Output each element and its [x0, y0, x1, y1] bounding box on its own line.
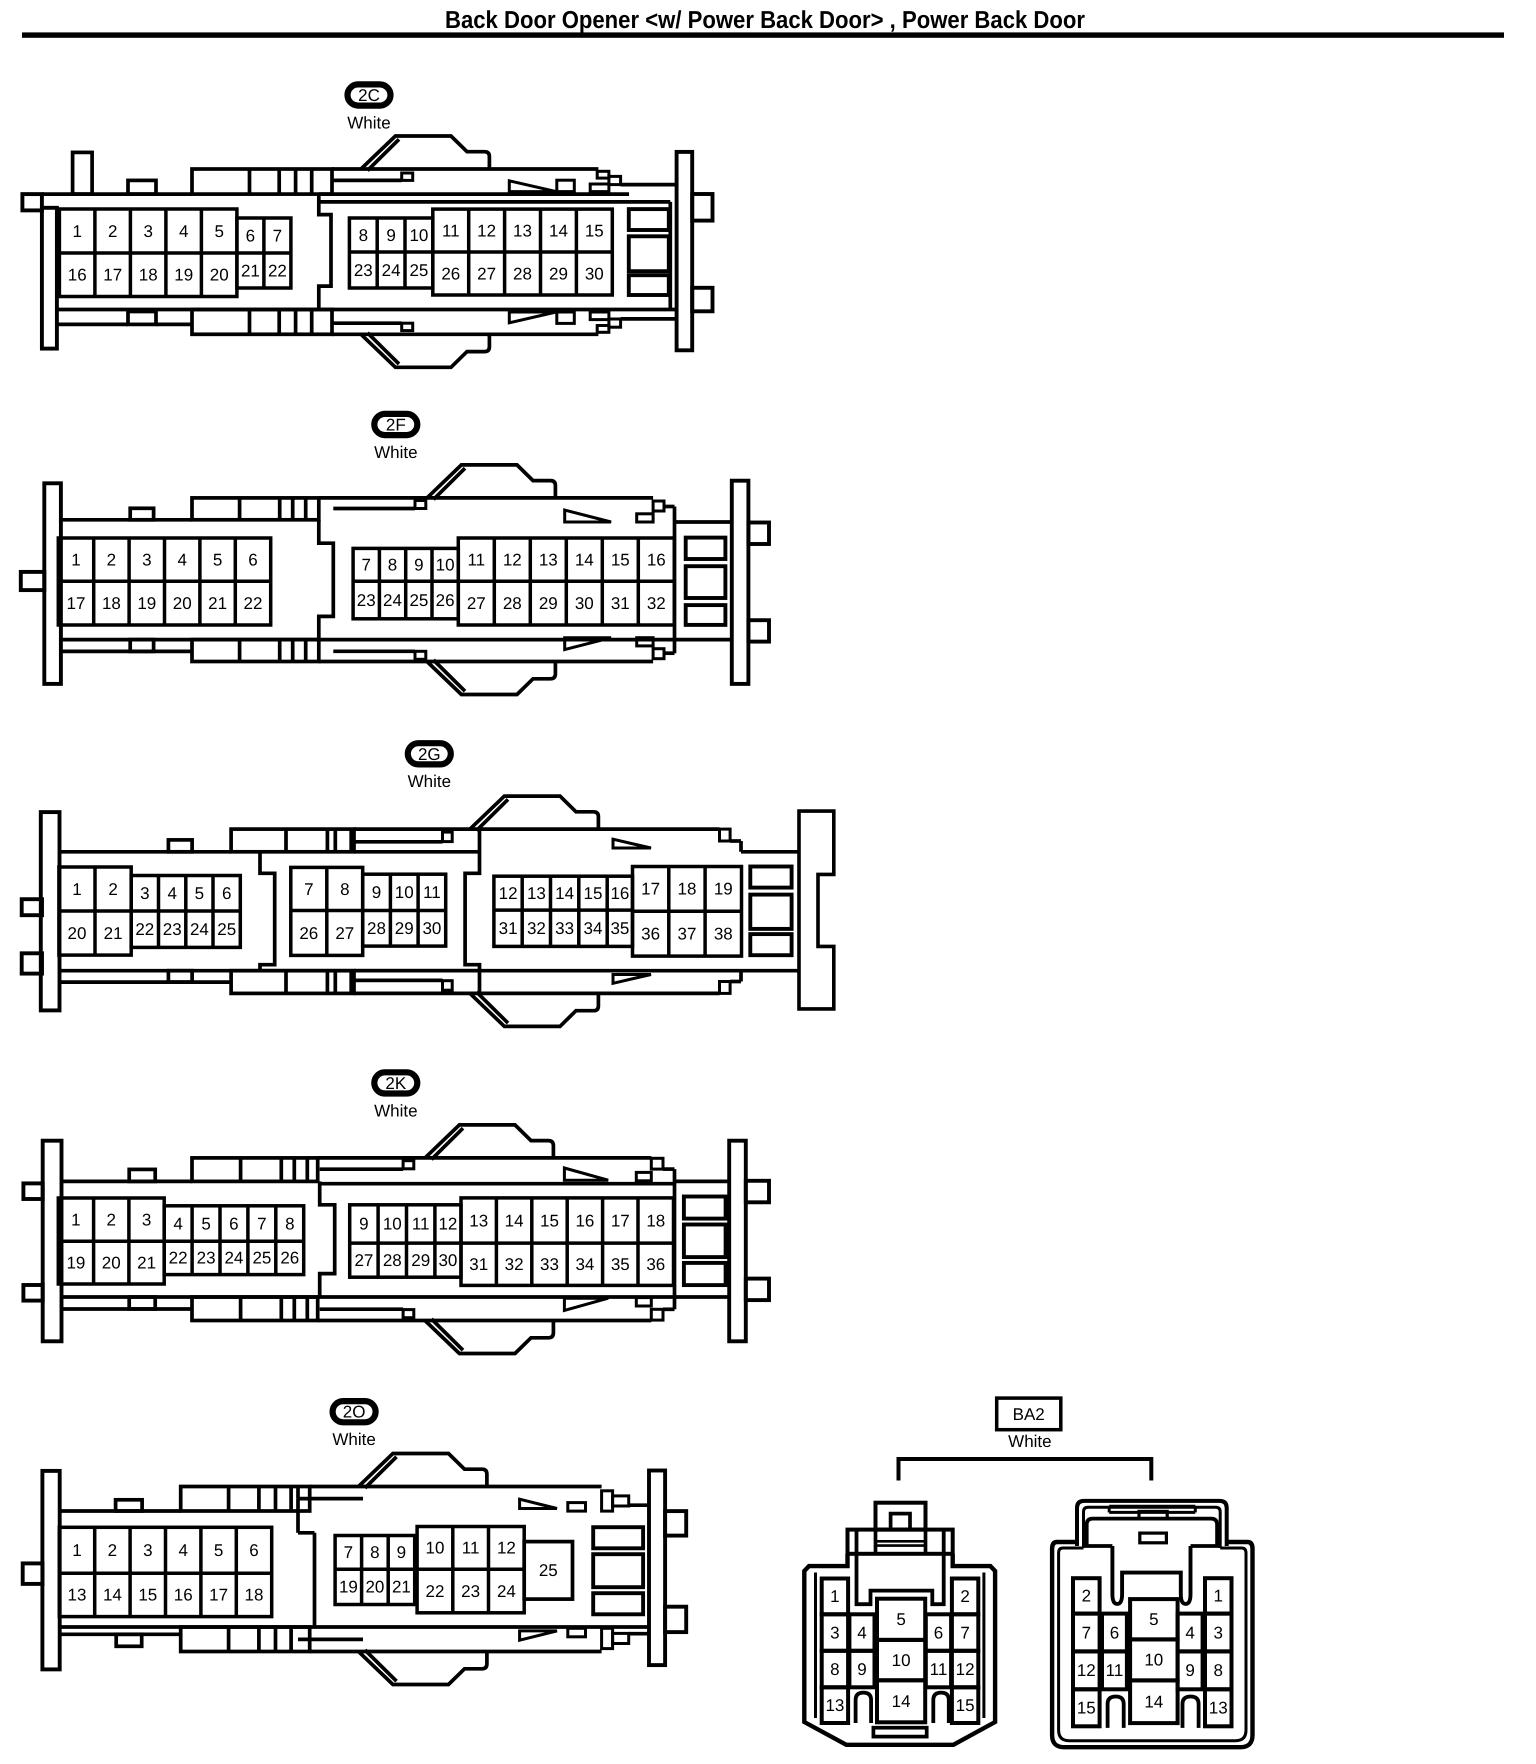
- svg-text:8: 8: [285, 1214, 294, 1233]
- svg-text:30: 30: [438, 1251, 457, 1270]
- svg-text:15: 15: [611, 550, 630, 569]
- svg-text:2G: 2G: [418, 745, 441, 764]
- svg-text:25: 25: [217, 920, 236, 939]
- svg-text:19: 19: [66, 1254, 85, 1273]
- svg-text:2: 2: [960, 1587, 969, 1606]
- svg-text:16: 16: [68, 266, 87, 285]
- svg-text:20: 20: [365, 1578, 384, 1597]
- svg-text:12: 12: [499, 884, 518, 903]
- svg-text:37: 37: [678, 925, 697, 944]
- svg-text:3: 3: [142, 550, 151, 569]
- svg-text:26: 26: [441, 264, 460, 283]
- svg-text:White: White: [408, 772, 451, 791]
- svg-text:19: 19: [339, 1578, 358, 1597]
- svg-text:33: 33: [555, 919, 574, 938]
- svg-text:2: 2: [106, 1211, 115, 1230]
- svg-text:5: 5: [201, 1214, 210, 1233]
- svg-text:11: 11: [467, 550, 485, 569]
- svg-text:31: 31: [611, 594, 630, 613]
- svg-text:18: 18: [678, 880, 697, 899]
- svg-text:2: 2: [108, 222, 117, 241]
- svg-text:10: 10: [409, 226, 428, 245]
- svg-text:4: 4: [178, 1541, 187, 1560]
- svg-text:32: 32: [647, 594, 666, 613]
- svg-text:13: 13: [469, 1211, 488, 1230]
- svg-text:7: 7: [304, 880, 313, 899]
- svg-text:9: 9: [1185, 1661, 1194, 1680]
- svg-text:White: White: [1008, 1432, 1051, 1451]
- svg-text:32: 32: [527, 919, 546, 938]
- svg-text:1: 1: [1213, 1587, 1222, 1606]
- svg-text:22: 22: [426, 1582, 445, 1601]
- svg-text:6: 6: [248, 550, 257, 569]
- svg-text:1: 1: [830, 1587, 839, 1606]
- svg-text:8: 8: [830, 1660, 839, 1679]
- svg-text:10: 10: [395, 883, 414, 902]
- svg-text:13: 13: [68, 1586, 87, 1605]
- svg-text:25: 25: [409, 591, 428, 610]
- svg-text:White: White: [374, 443, 417, 462]
- svg-text:5: 5: [1149, 1610, 1158, 1629]
- svg-text:11: 11: [442, 221, 460, 240]
- svg-text:21: 21: [241, 261, 260, 280]
- svg-text:21: 21: [104, 924, 123, 943]
- svg-text:24: 24: [497, 1582, 516, 1601]
- svg-text:7: 7: [257, 1214, 266, 1233]
- svg-text:9: 9: [857, 1660, 866, 1679]
- svg-text:5: 5: [896, 1610, 905, 1629]
- svg-text:14: 14: [892, 1692, 911, 1711]
- svg-text:20: 20: [210, 266, 229, 285]
- svg-text:1: 1: [72, 222, 81, 241]
- svg-text:23: 23: [354, 261, 373, 280]
- svg-text:28: 28: [367, 919, 386, 938]
- svg-text:14: 14: [549, 221, 568, 240]
- svg-text:3: 3: [142, 1211, 151, 1230]
- svg-text:14: 14: [555, 884, 574, 903]
- svg-text:3: 3: [143, 222, 152, 241]
- svg-text:28: 28: [513, 264, 532, 283]
- svg-text:2O: 2O: [343, 1403, 366, 1422]
- svg-text:15: 15: [138, 1586, 157, 1605]
- svg-text:27: 27: [477, 264, 496, 283]
- svg-text:13: 13: [513, 221, 532, 240]
- svg-text:14: 14: [1144, 1693, 1163, 1712]
- svg-text:9: 9: [397, 1543, 406, 1562]
- svg-text:10: 10: [383, 1215, 402, 1234]
- svg-text:6: 6: [222, 884, 231, 903]
- svg-text:6: 6: [1110, 1623, 1119, 1642]
- svg-text:7: 7: [361, 556, 370, 575]
- svg-text:19: 19: [137, 594, 156, 613]
- svg-text:10: 10: [436, 556, 455, 575]
- svg-text:4: 4: [173, 1214, 182, 1233]
- svg-text:1: 1: [71, 550, 80, 569]
- svg-text:2: 2: [108, 880, 117, 899]
- svg-text:7: 7: [960, 1623, 969, 1642]
- svg-text:29: 29: [539, 594, 558, 613]
- svg-text:29: 29: [549, 264, 568, 283]
- svg-text:13: 13: [539, 550, 558, 569]
- svg-text:9: 9: [359, 1215, 368, 1234]
- svg-text:11: 11: [930, 1660, 948, 1679]
- svg-text:6: 6: [229, 1214, 238, 1233]
- svg-text:8: 8: [340, 880, 349, 899]
- svg-text:12: 12: [477, 221, 496, 240]
- svg-text:4: 4: [177, 550, 186, 569]
- svg-text:29: 29: [411, 1251, 430, 1270]
- svg-text:25: 25: [252, 1249, 271, 1268]
- svg-text:4: 4: [1185, 1623, 1194, 1642]
- svg-text:3: 3: [830, 1623, 839, 1642]
- svg-text:24: 24: [382, 261, 401, 280]
- svg-text:31: 31: [469, 1255, 488, 1274]
- svg-text:18: 18: [102, 594, 121, 613]
- svg-text:16: 16: [647, 550, 666, 569]
- svg-text:9: 9: [386, 226, 395, 245]
- svg-text:12: 12: [956, 1660, 975, 1679]
- svg-text:11: 11: [1106, 1661, 1124, 1680]
- svg-text:12: 12: [503, 550, 522, 569]
- svg-text:15: 15: [585, 221, 604, 240]
- svg-text:2: 2: [108, 1541, 117, 1560]
- svg-text:31: 31: [499, 919, 518, 938]
- svg-text:9: 9: [372, 883, 381, 902]
- svg-text:32: 32: [505, 1255, 524, 1274]
- svg-text:Back Door Opener <w/ Power Bac: Back Door Opener <w/ Power Back Door> , …: [445, 7, 1085, 34]
- svg-text:23: 23: [163, 920, 182, 939]
- svg-text:33: 33: [540, 1255, 559, 1274]
- svg-text:26: 26: [436, 591, 455, 610]
- svg-text:10: 10: [892, 1651, 911, 1670]
- svg-text:5: 5: [213, 550, 222, 569]
- svg-text:25: 25: [409, 261, 428, 280]
- svg-text:16: 16: [610, 884, 629, 903]
- svg-text:17: 17: [209, 1586, 228, 1605]
- svg-text:30: 30: [585, 264, 604, 283]
- svg-text:28: 28: [503, 594, 522, 613]
- svg-text:10: 10: [426, 1539, 445, 1558]
- svg-text:3: 3: [140, 884, 149, 903]
- svg-text:15: 15: [956, 1696, 975, 1715]
- svg-text:10: 10: [1144, 1651, 1163, 1670]
- svg-text:11: 11: [423, 883, 441, 902]
- svg-text:23: 23: [197, 1249, 216, 1268]
- svg-text:BA2: BA2: [1013, 1405, 1045, 1424]
- svg-text:18: 18: [646, 1211, 665, 1230]
- svg-text:18: 18: [245, 1586, 264, 1605]
- svg-text:2C: 2C: [358, 86, 380, 105]
- svg-text:5: 5: [195, 884, 204, 903]
- svg-text:16: 16: [575, 1211, 594, 1230]
- svg-text:16: 16: [174, 1586, 193, 1605]
- svg-text:27: 27: [335, 924, 354, 943]
- svg-text:22: 22: [169, 1249, 188, 1268]
- svg-text:21: 21: [137, 1254, 156, 1273]
- svg-text:8: 8: [388, 556, 397, 575]
- svg-text:6: 6: [246, 226, 255, 245]
- svg-text:27: 27: [354, 1251, 373, 1270]
- svg-text:15: 15: [540, 1211, 559, 1230]
- svg-text:6: 6: [249, 1541, 258, 1560]
- svg-text:23: 23: [357, 591, 376, 610]
- svg-text:34: 34: [584, 919, 603, 938]
- svg-text:35: 35: [611, 1255, 630, 1274]
- svg-text:34: 34: [575, 1255, 594, 1274]
- svg-text:7: 7: [344, 1543, 353, 1562]
- svg-text:30: 30: [575, 594, 594, 613]
- svg-text:4: 4: [179, 222, 188, 241]
- svg-text:36: 36: [646, 1255, 665, 1274]
- svg-text:17: 17: [611, 1211, 630, 1230]
- svg-text:14: 14: [575, 550, 594, 569]
- svg-text:15: 15: [584, 884, 603, 903]
- svg-text:11: 11: [412, 1215, 430, 1234]
- svg-text:29: 29: [395, 919, 414, 938]
- svg-text:19: 19: [174, 266, 193, 285]
- svg-text:12: 12: [497, 1539, 516, 1558]
- svg-text:13: 13: [825, 1696, 844, 1715]
- svg-text:22: 22: [244, 594, 263, 613]
- svg-text:25: 25: [539, 1561, 558, 1580]
- svg-text:24: 24: [383, 591, 402, 610]
- svg-text:36: 36: [641, 925, 660, 944]
- svg-text:28: 28: [383, 1251, 402, 1270]
- svg-text:11: 11: [462, 1539, 480, 1558]
- svg-text:24: 24: [224, 1249, 243, 1268]
- svg-text:21: 21: [392, 1578, 411, 1597]
- svg-text:White: White: [347, 113, 390, 132]
- svg-text:26: 26: [280, 1249, 299, 1268]
- svg-text:White: White: [374, 1101, 417, 1120]
- svg-text:8: 8: [359, 226, 368, 245]
- svg-text:4: 4: [167, 884, 176, 903]
- svg-text:23: 23: [461, 1582, 480, 1601]
- svg-text:15: 15: [1077, 1699, 1096, 1718]
- svg-text:3: 3: [143, 1541, 152, 1560]
- svg-text:20: 20: [102, 1254, 121, 1273]
- svg-text:2: 2: [1082, 1587, 1091, 1606]
- svg-text:17: 17: [103, 266, 122, 285]
- svg-text:19: 19: [714, 880, 733, 899]
- svg-text:18: 18: [139, 266, 158, 285]
- svg-text:24: 24: [190, 920, 209, 939]
- svg-text:5: 5: [214, 1541, 223, 1560]
- svg-text:21: 21: [208, 594, 227, 613]
- svg-text:13: 13: [1209, 1699, 1228, 1718]
- svg-text:8: 8: [1213, 1661, 1222, 1680]
- svg-text:5: 5: [214, 222, 223, 241]
- svg-text:13: 13: [527, 884, 546, 903]
- svg-text:27: 27: [467, 594, 486, 613]
- svg-text:8: 8: [370, 1543, 379, 1562]
- svg-text:38: 38: [714, 925, 733, 944]
- svg-text:1: 1: [72, 880, 81, 899]
- svg-text:17: 17: [641, 880, 660, 899]
- svg-text:20: 20: [173, 594, 192, 613]
- svg-text:White: White: [332, 1430, 375, 1449]
- svg-text:14: 14: [505, 1211, 524, 1230]
- svg-text:1: 1: [71, 1211, 80, 1230]
- svg-text:2K: 2K: [385, 1074, 406, 1093]
- svg-text:12: 12: [438, 1215, 457, 1234]
- svg-text:7: 7: [273, 226, 282, 245]
- svg-text:9: 9: [414, 556, 423, 575]
- svg-text:20: 20: [68, 924, 87, 943]
- svg-text:22: 22: [268, 261, 287, 280]
- svg-text:6: 6: [934, 1623, 943, 1642]
- svg-text:35: 35: [610, 919, 629, 938]
- svg-text:4: 4: [857, 1623, 866, 1642]
- svg-text:2: 2: [107, 550, 116, 569]
- svg-text:12: 12: [1077, 1661, 1096, 1680]
- svg-text:7: 7: [1082, 1623, 1091, 1642]
- svg-text:14: 14: [103, 1586, 122, 1605]
- svg-text:3: 3: [1213, 1623, 1222, 1642]
- svg-text:30: 30: [422, 919, 441, 938]
- svg-text:1: 1: [72, 1541, 81, 1560]
- svg-text:2F: 2F: [386, 416, 406, 435]
- svg-text:17: 17: [67, 594, 86, 613]
- svg-text:22: 22: [135, 920, 154, 939]
- svg-text:26: 26: [299, 924, 318, 943]
